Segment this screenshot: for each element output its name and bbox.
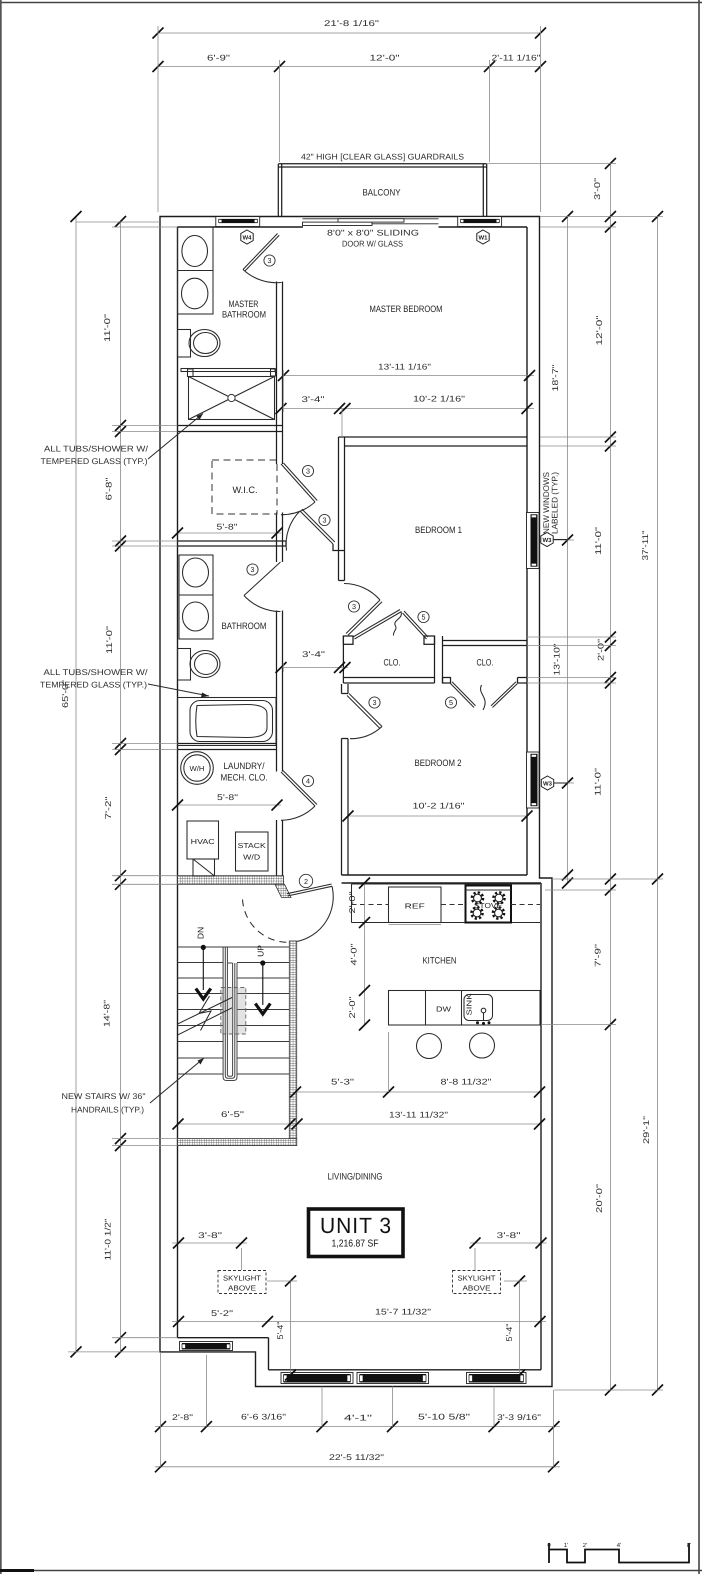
svg-text:22'-5 11/32": 22'-5 11/32" — [329, 1452, 384, 1462]
svg-text:3: 3 — [306, 467, 310, 476]
svg-text:W1: W1 — [479, 234, 489, 241]
svg-text:1,216.87 SF: 1,216.87 SF — [332, 1239, 379, 1250]
svg-text:TEMPERED GLASS (TYP.): TEMPERED GLASS (TYP.) — [41, 456, 148, 466]
svg-text:LAUNDRY/: LAUNDRY/ — [224, 761, 265, 771]
svg-text:2'-0": 2'-0" — [347, 891, 357, 913]
svg-text:BEDROOM 1: BEDROOM 1 — [415, 525, 462, 535]
svg-text:5'-4": 5'-4" — [504, 1323, 514, 1341]
svg-text:BEDROOM 2: BEDROOM 2 — [415, 758, 462, 768]
svg-text:2'-8": 2'-8" — [172, 1412, 193, 1422]
svg-text:12'-0": 12'-0" — [370, 53, 400, 63]
svg-text:ABOVE: ABOVE — [463, 1284, 491, 1293]
svg-text:SINK: SINK — [465, 993, 474, 1015]
svg-text:3: 3 — [373, 698, 377, 707]
svg-text:20'-0": 20'-0" — [594, 1184, 604, 1213]
svg-text:42" HIGH [CLEAR GLASS] GUARDR: 42" HIGH [CLEAR GLASS] GUARDRAILS — [301, 152, 464, 162]
svg-text:10'-2 1/16": 10'-2 1/16" — [413, 394, 465, 404]
svg-text:11'-0": 11'-0" — [593, 527, 603, 555]
svg-text:6'-9": 6'-9" — [207, 53, 230, 63]
svg-text:3'-4": 3'-4" — [302, 394, 325, 404]
svg-text:5'-3": 5'-3" — [331, 1077, 354, 1087]
svg-text:5'-10 5/8": 5'-10 5/8" — [418, 1412, 470, 1422]
svg-text:4'-1": 4'-1" — [344, 1413, 372, 1423]
svg-text:37'-11": 37'-11" — [640, 530, 650, 560]
svg-text:7'-2": 7'-2" — [103, 796, 113, 819]
svg-text:MASTER: MASTER — [229, 299, 259, 309]
svg-text:REF: REF — [405, 901, 426, 910]
svg-text:2'-0": 2'-0" — [347, 996, 357, 1018]
svg-text:CLO.: CLO. — [384, 658, 401, 668]
svg-text:5: 5 — [422, 613, 426, 622]
svg-text:W/D: W/D — [243, 852, 260, 861]
svg-text:LIVING/DINING: LIVING/DINING — [328, 1172, 383, 1182]
svg-text:HANDRAILS (TYP.): HANDRAILS (TYP.) — [71, 1105, 144, 1115]
svg-text:BALCONY: BALCONY — [363, 188, 401, 198]
svg-text:5: 5 — [449, 698, 453, 707]
svg-text:11'-0 1/2": 11'-0 1/2" — [103, 1218, 113, 1260]
svg-text:3: 3 — [352, 602, 356, 611]
svg-text:11'-0": 11'-0" — [104, 626, 114, 654]
svg-text:DW: DW — [436, 1005, 451, 1014]
svg-text:13'-11 11/32": 13'-11 11/32" — [389, 1110, 448, 1120]
svg-text:NEW STAIRS W/ 36": NEW STAIRS W/ 36" — [62, 1091, 146, 1101]
svg-text:ALL TUBS/SHOWER W/: ALL TUBS/SHOWER W/ — [44, 667, 149, 677]
svg-text:2: 2 — [304, 877, 308, 886]
svg-text:MECH. CLO.: MECH. CLO. — [221, 773, 268, 783]
svg-text:LABELED (TYP.): LABELED (TYP.) — [550, 472, 560, 534]
svg-text:ALL TUBS/SHOWER W/: ALL TUBS/SHOWER W/ — [44, 444, 149, 454]
svg-text:KITCHEN: KITCHEN — [423, 956, 457, 966]
svg-text:ABOVE: ABOVE — [228, 1284, 256, 1293]
svg-text:UP: UP — [256, 945, 266, 957]
svg-text:W3: W3 — [543, 780, 553, 787]
svg-text:DN: DN — [196, 927, 206, 939]
svg-text:13'-10": 13'-10" — [552, 643, 562, 675]
svg-text:13'-11 1/16": 13'-11 1/16" — [378, 362, 431, 372]
svg-text:W3: W3 — [543, 537, 553, 544]
svg-text:14'-8": 14'-8" — [102, 1000, 112, 1027]
svg-text:CLO.: CLO. — [477, 658, 494, 668]
svg-text:3: 3 — [251, 565, 255, 574]
svg-text:STOVE: STOVE — [474, 901, 502, 910]
svg-text:DOOR W/ GLASS: DOOR W/ GLASS — [342, 239, 403, 249]
svg-text:5'-2": 5'-2" — [211, 1308, 233, 1318]
svg-text:SKYLIGHT: SKYLIGHT — [223, 1274, 262, 1283]
svg-text:5'-8": 5'-8" — [217, 792, 238, 802]
svg-text:18'-7": 18'-7" — [550, 364, 560, 391]
svg-text:6'-6 3/16": 6'-6 3/16" — [241, 1412, 286, 1422]
svg-text:4': 4' — [617, 1542, 621, 1549]
svg-text:W.I.C.: W.I.C. — [233, 485, 258, 495]
svg-text:3: 3 — [323, 516, 327, 525]
svg-text:11'-0": 11'-0" — [102, 314, 112, 342]
svg-text:TEMPERED GLASS (TYP.): TEMPERED GLASS (TYP.) — [40, 679, 147, 689]
svg-text:W4: W4 — [243, 234, 253, 241]
svg-text:BATHROOM: BATHROOM — [222, 310, 266, 320]
svg-text:15'-7 11/32": 15'-7 11/32" — [375, 1307, 431, 1317]
svg-text:5'-4": 5'-4" — [275, 1321, 285, 1339]
svg-text:21'-8 1/16": 21'-8 1/16" — [324, 18, 379, 28]
svg-text:12'-0": 12'-0" — [594, 315, 604, 345]
svg-text:6'-8": 6'-8" — [104, 477, 114, 500]
svg-text:3: 3 — [268, 256, 272, 265]
svg-text:MASTER BEDROOM: MASTER BEDROOM — [370, 304, 443, 314]
svg-text:3'-4": 3'-4" — [302, 649, 325, 659]
svg-text:BATHROOM: BATHROOM — [222, 621, 267, 631]
svg-text:2'-11 1/16": 2'-11 1/16" — [492, 53, 541, 63]
svg-text:11'-0": 11'-0" — [593, 768, 603, 796]
svg-text:10'-2 1/16": 10'-2 1/16" — [413, 801, 465, 811]
svg-text:29'-1": 29'-1" — [641, 1116, 651, 1144]
svg-text:1': 1' — [564, 1542, 568, 1549]
svg-text:3'-8": 3'-8" — [497, 1230, 521, 1240]
svg-text:7'-9": 7'-9" — [593, 944, 603, 967]
svg-text:8': 8' — [687, 1542, 691, 1549]
svg-text:4: 4 — [306, 777, 310, 786]
svg-text:2'-0": 2'-0" — [596, 639, 606, 661]
svg-text:4'-0": 4'-0" — [349, 943, 359, 965]
svg-text:HVAC: HVAC — [191, 837, 215, 846]
svg-text:SKYLIGHT: SKYLIGHT — [458, 1274, 497, 1283]
svg-text:3'-3 9/16": 3'-3 9/16" — [497, 1412, 541, 1422]
svg-text:W/H: W/H — [190, 764, 205, 773]
svg-text:8'-8 11/32": 8'-8 11/32" — [441, 1077, 492, 1087]
svg-text:3'-8": 3'-8" — [198, 1230, 222, 1240]
svg-text:2': 2' — [583, 1542, 587, 1549]
svg-text:5'-8": 5'-8" — [217, 522, 238, 532]
svg-text:STACK: STACK — [238, 841, 266, 850]
svg-text:3'-0": 3'-0" — [592, 178, 602, 200]
svg-text:8'0" x 8'0" SLIDING: 8'0" x 8'0" SLIDING — [327, 228, 419, 238]
svg-text:6'-5": 6'-5" — [221, 1109, 244, 1119]
svg-text:UNIT 3: UNIT 3 — [320, 1213, 392, 1238]
